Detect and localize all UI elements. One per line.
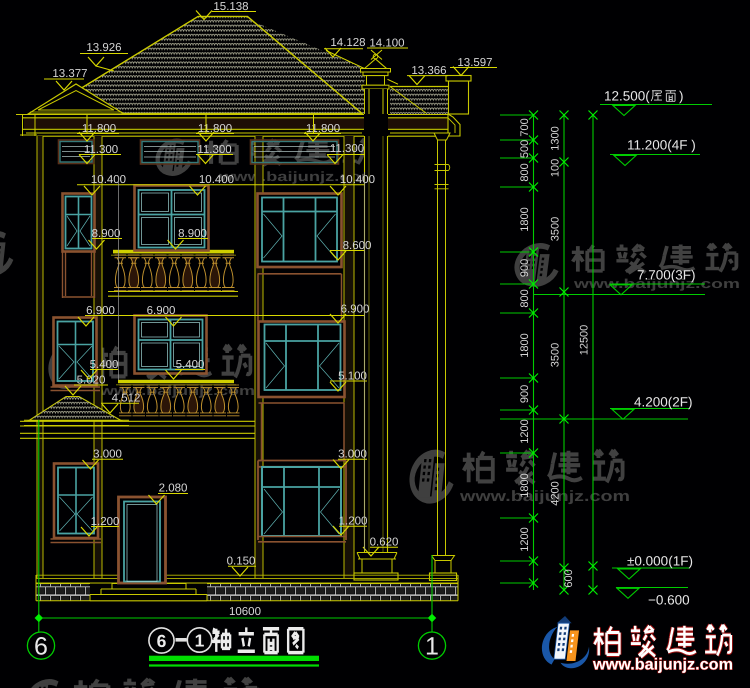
- svg-text:1200: 1200: [519, 527, 531, 551]
- svg-text:www.baijunjz.com: www.baijunjz.com: [459, 488, 630, 505]
- svg-text:0.150: 0.150: [227, 556, 256, 568]
- svg-text:14.128: 14.128: [330, 37, 365, 49]
- svg-text:1800: 1800: [519, 207, 531, 231]
- svg-text:±0.000(1F): ±0.000(1F): [627, 554, 693, 569]
- svg-text:10.400: 10.400: [91, 174, 126, 186]
- svg-text:1: 1: [425, 633, 439, 661]
- svg-text:6: 6: [157, 631, 167, 651]
- svg-text:12500: 12500: [579, 325, 591, 356]
- svg-text:1800: 1800: [519, 333, 531, 357]
- svg-text:6.900: 6.900: [341, 304, 370, 316]
- svg-text:900: 900: [519, 259, 531, 277]
- svg-text:3.000: 3.000: [338, 449, 367, 461]
- svg-text:11.300: 11.300: [330, 143, 364, 155]
- svg-text:11.200(4F ): 11.200(4F ): [627, 138, 696, 153]
- svg-text:1800: 1800: [519, 473, 531, 497]
- svg-text:10.400: 10.400: [199, 174, 234, 186]
- svg-text:): ): [679, 89, 684, 104]
- svg-text:900: 900: [519, 385, 531, 403]
- svg-text:13.377: 13.377: [52, 68, 87, 80]
- svg-text:10600: 10600: [229, 606, 261, 618]
- svg-text:500: 500: [519, 140, 531, 158]
- svg-text:1300: 1300: [550, 126, 562, 150]
- svg-text:3.000: 3.000: [93, 449, 122, 461]
- svg-text:10.400: 10.400: [340, 174, 375, 186]
- svg-text:7.700(3F): 7.700(3F): [637, 268, 696, 283]
- svg-text:1.200: 1.200: [339, 516, 368, 528]
- svg-text:1200: 1200: [519, 419, 531, 443]
- svg-text:3500: 3500: [550, 217, 562, 241]
- svg-text:700: 700: [519, 118, 531, 136]
- svg-text:−0.600: −0.600: [648, 593, 690, 608]
- svg-text:4.200(2F): 4.200(2F): [634, 395, 693, 410]
- svg-text:13.926: 13.926: [86, 42, 121, 54]
- svg-text:800: 800: [519, 289, 531, 307]
- svg-text:0.620: 0.620: [370, 537, 399, 549]
- svg-text:www.baijunjz.com: www.baijunjz.com: [592, 657, 733, 674]
- svg-text:800: 800: [519, 163, 531, 181]
- svg-text:100: 100: [550, 159, 562, 177]
- svg-text:6: 6: [34, 633, 48, 661]
- svg-text:4.512: 4.512: [112, 393, 141, 405]
- svg-text:1: 1: [195, 631, 205, 651]
- svg-text:600: 600: [563, 569, 575, 587]
- svg-text:4200: 4200: [550, 481, 562, 505]
- svg-text:12.500(: 12.500(: [604, 89, 650, 104]
- svg-text:3500: 3500: [550, 343, 562, 367]
- svg-text:2.080: 2.080: [159, 483, 188, 495]
